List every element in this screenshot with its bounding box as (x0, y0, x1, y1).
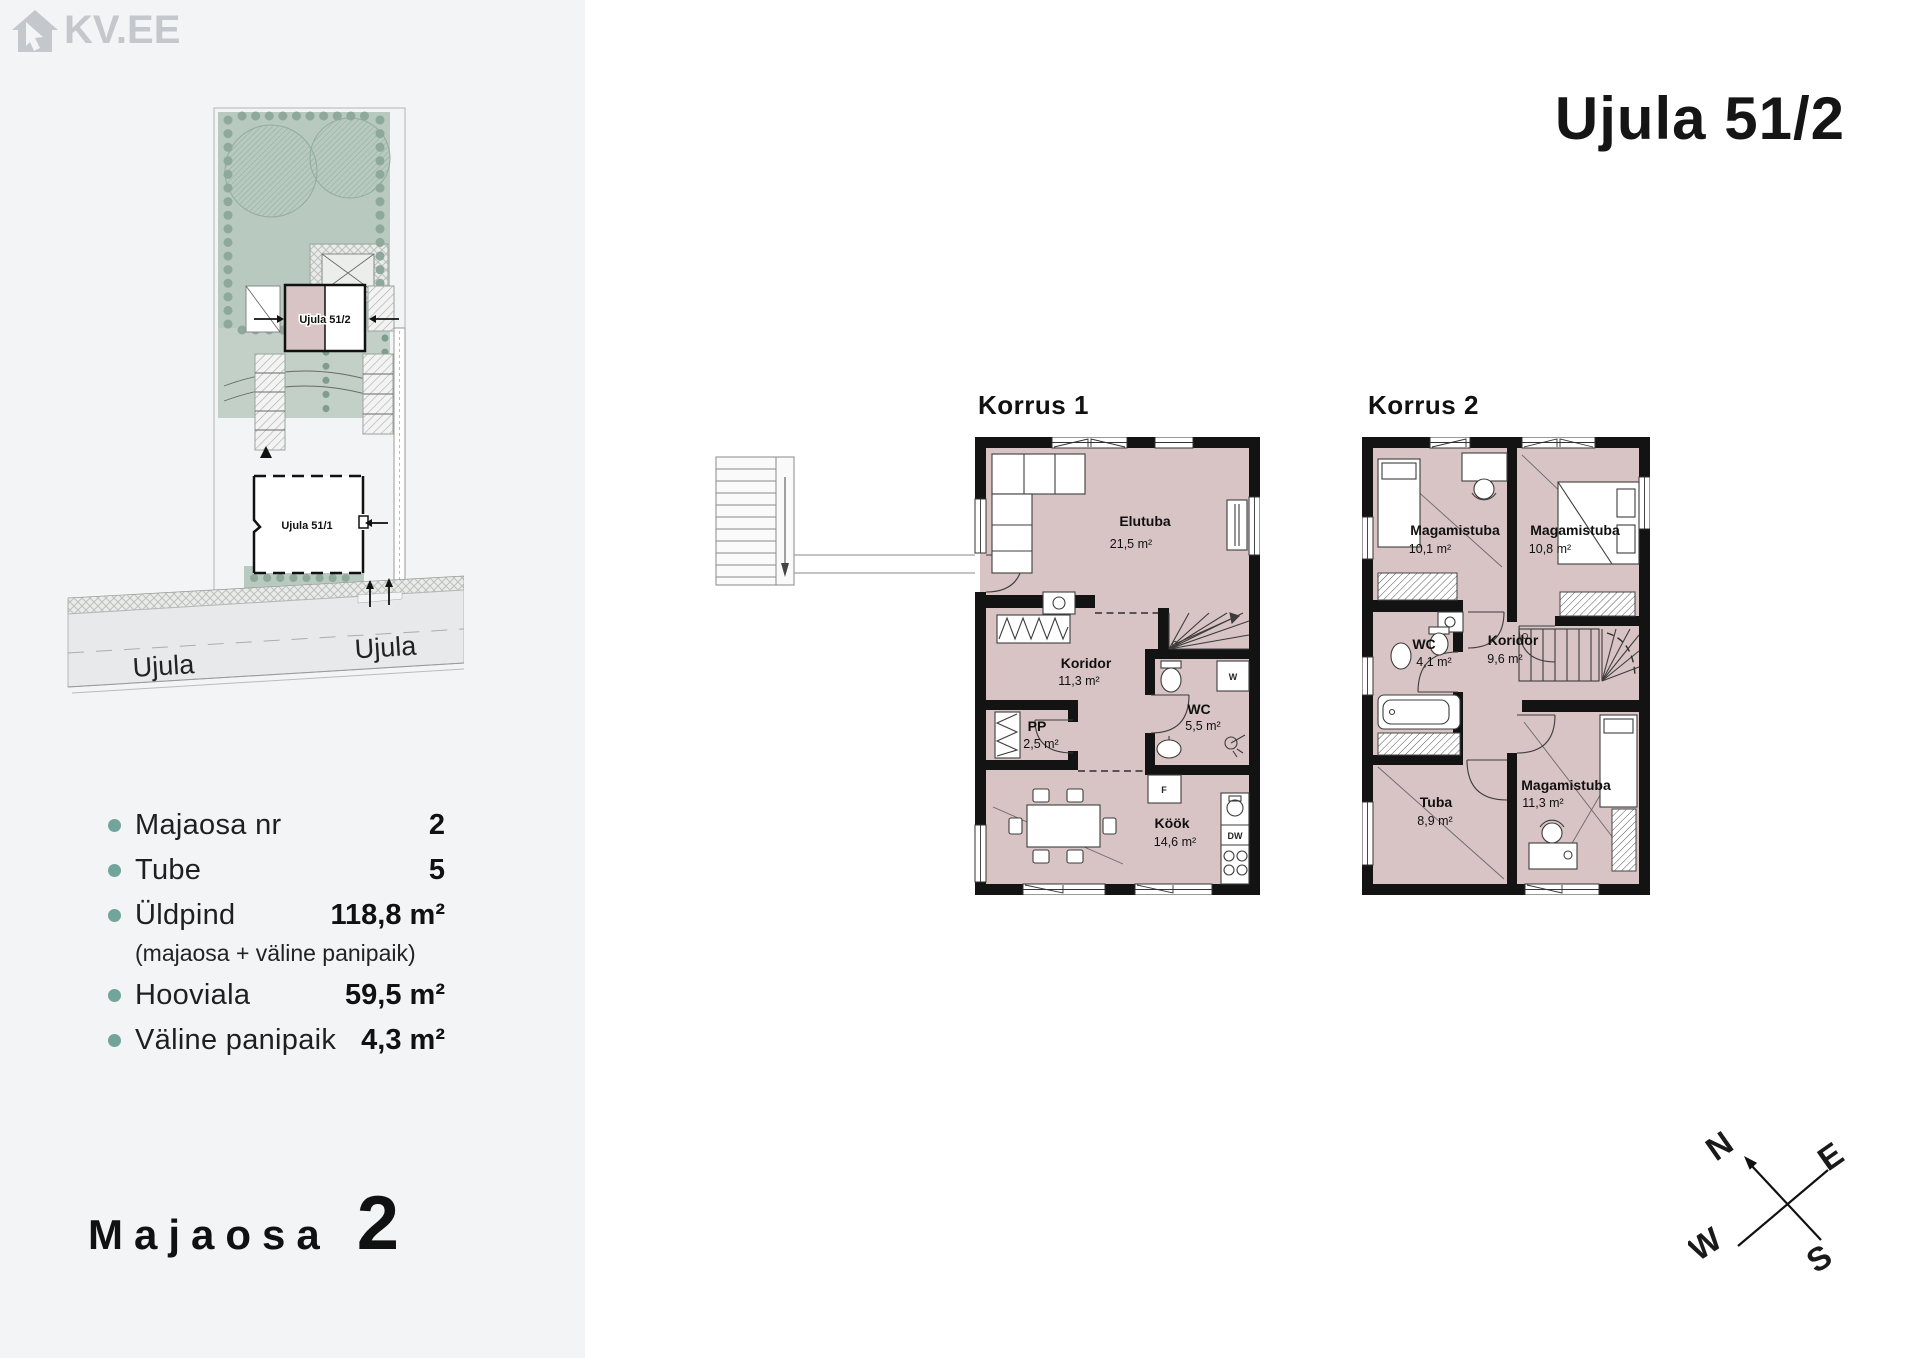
radiator (1227, 500, 1247, 550)
floor-1-plan: W F (975, 437, 1260, 895)
uldpind-note: (majaosa + väline panipaik) (135, 938, 445, 973)
compass-n: N (1699, 1124, 1740, 1168)
room-label-tuba: Tuba (1420, 794, 1453, 810)
detail-label: Majaosa nr (135, 809, 281, 842)
room-label-wc2: WC (1412, 636, 1435, 652)
floor-1-label: Korrus 1 (978, 390, 1089, 421)
detail-label: Hooviala (135, 979, 250, 1012)
room-label-wc: WC (1187, 701, 1210, 717)
bullet-icon (108, 864, 121, 877)
room-area-koridor2: 9,6 m² (1487, 652, 1522, 666)
compass-w: W (1688, 1219, 1729, 1267)
room-area-magamistuba3: 11,3 m² (1522, 796, 1563, 810)
room-area-elutuba: 21,5 m² (1110, 537, 1152, 551)
north-arrow-icon (1744, 1156, 1757, 1170)
compass-s: S (1800, 1237, 1839, 1280)
detail-row-valine-panipaik: Väline panipaik 4,3 m² (108, 1018, 445, 1063)
boiler-unit (1043, 592, 1075, 614)
detail-value: 4,3 m² (361, 1024, 445, 1057)
room-label-magamistuba2: Magamistuba (1530, 522, 1620, 538)
fridge-label: F (1161, 785, 1167, 795)
kv-ee-logo: KV.EE (12, 8, 180, 53)
building-ujula-51-1: Ujula 51/1 (254, 476, 388, 573)
room-label-pp: PP (1028, 718, 1047, 734)
property-details-list: Majaosa nr 2 Tube 5 Üldpind 118,8 m² (ma… (108, 803, 445, 1063)
logo-text: KV.EE (64, 8, 180, 53)
detail-label: Üldpind (135, 899, 235, 932)
site-plan-map: Ujula 51/2 (58, 86, 464, 712)
room-area-wc2: 4,1 m² (1416, 655, 1451, 669)
exterior-stairs (716, 457, 975, 585)
brochure-page: KV.EE (0, 0, 1920, 1358)
detail-row-uldpind: Üldpind 118,8 m² (108, 893, 445, 938)
floor-2-label: Korrus 2 (1368, 390, 1479, 421)
house-cursor-icon (12, 10, 58, 52)
bullet-icon (108, 989, 121, 1002)
room-label-elutuba: Elutuba (1119, 513, 1171, 529)
room-area-tuba: 8,9 m² (1417, 814, 1452, 828)
majaosa-number: 2 (357, 1180, 399, 1267)
siteplan-unit-label: Ujula 51/2 (299, 314, 350, 326)
street-ujula: Ujula Ujula (68, 576, 464, 693)
compass-rose: N E W S (1688, 1118, 1863, 1293)
bullet-icon (108, 909, 121, 922)
detail-row-tube: Tube 5 (108, 848, 445, 893)
detail-value: 5 (429, 854, 445, 887)
detail-label: Tube (135, 854, 201, 887)
street-label-right: Ujula (354, 631, 418, 665)
sidebar: KV.EE (0, 0, 585, 1358)
room-label-magamistuba3: Magamistuba (1521, 777, 1611, 793)
detail-value: 2 (429, 809, 445, 842)
room-area-pp: 2,5 m² (1023, 737, 1058, 751)
room-area-magamistuba2: 10,8 m² (1529, 542, 1571, 556)
majaosa-label: Majaosa (88, 1211, 331, 1259)
room-label-koridor: Koridor (1061, 655, 1112, 671)
detail-row-hooviala: Hooviala 59,5 m² (108, 973, 445, 1018)
siteplan-neighbor-label: Ujula 51/1 (281, 520, 332, 532)
page-title: Ujula 51/2 (1555, 84, 1845, 153)
compass-e: E (1811, 1135, 1850, 1178)
detail-label: Väline panipaik (135, 1024, 336, 1057)
detail-row-majaosa-nr: Majaosa nr 2 (108, 803, 445, 848)
bullet-icon (108, 819, 121, 832)
room-label-magamistuba1: Magamistuba (1410, 522, 1500, 538)
street-label-left: Ujula (132, 649, 196, 683)
coat-rack (997, 615, 1070, 643)
detail-value: 59,5 m² (345, 979, 445, 1012)
bullet-icon (108, 1034, 121, 1047)
floor-plan-korrus-1: W F (698, 437, 1260, 895)
majaosa-footer: Majaosa 2 (88, 1180, 399, 1267)
floor-plan-korrus-2: Magamistuba 10,1 m² Magamistuba 10,8 m² … (1362, 437, 1650, 895)
room-area-magamistuba1: 10,1 m² (1409, 542, 1451, 556)
detail-value: 118,8 m² (331, 899, 445, 932)
room-label-koridor2: Koridor (1488, 632, 1539, 648)
room-area-wc: 5,5 m² (1185, 719, 1220, 733)
dishwasher-label: DW (1228, 831, 1243, 841)
room-label-kook: Köök (1155, 815, 1190, 831)
room-area-kook: 14,6 m² (1154, 835, 1196, 849)
washer-label: W (1229, 672, 1238, 682)
room-area-koridor: 11,3 m² (1058, 674, 1099, 688)
